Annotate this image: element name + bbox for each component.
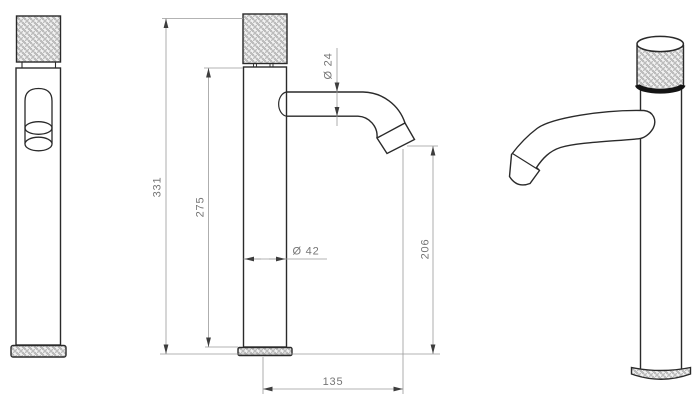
dimension-label-body-height: 275 [195, 197, 207, 218]
side-spout-bottom-contour [287, 116, 378, 138]
dimension-label-total-height: 331 [152, 177, 164, 198]
front-base-knurled [11, 346, 66, 358]
persp-knob [637, 36, 684, 91]
dimension-label-spout-diameter: Ø 24 [323, 52, 335, 79]
front-handle-end [25, 137, 52, 151]
persp-spout-outline [510, 110, 655, 185]
dimension-label-body-diameter: Ø 42 [292, 246, 319, 258]
front-handle [25, 89, 52, 151]
dimension-label-outlet-height: 206 [420, 239, 432, 260]
dimension-labels: 331 275 Ø 24 Ø 42 206 135 [152, 52, 432, 388]
front-view [11, 16, 66, 357]
dim-total-height [162, 19, 243, 355]
front-neck [22, 62, 56, 68]
persp-knob-top [637, 36, 683, 51]
side-spout-top-contour [287, 92, 406, 123]
persp-spout [510, 110, 655, 185]
side-body [244, 67, 287, 347]
side-aerator [377, 123, 415, 154]
faucet-drawing-canvas: 331 275 Ø 24 Ø 42 206 135 [0, 0, 700, 411]
persp-base-knurled [632, 368, 691, 380]
front-knob-knurled [17, 16, 61, 62]
side-spout [279, 92, 415, 154]
dim-body-height [204, 68, 243, 347]
perspective-view [510, 36, 691, 379]
side-knob-knurled [243, 14, 287, 64]
technical-drawing: 331 275 Ø 24 Ø 42 206 135 [0, 0, 700, 411]
dimension-label-spout-reach: 135 [323, 376, 344, 388]
